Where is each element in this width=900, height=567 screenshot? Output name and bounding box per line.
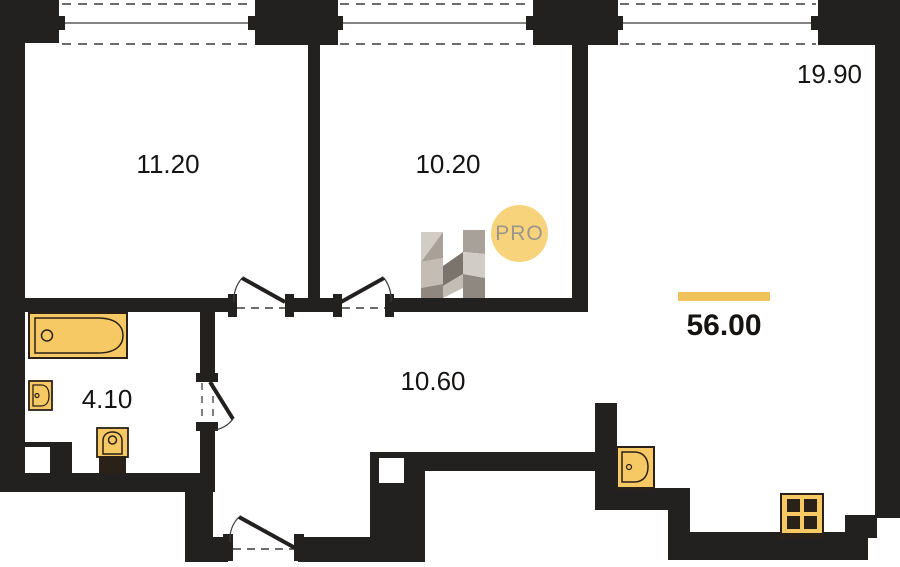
window-3-icon <box>615 4 819 44</box>
bathtub-icon <box>28 312 128 359</box>
door-room1-icon <box>228 278 294 317</box>
window-1-icon <box>57 4 256 44</box>
floor-plan: 11.20 10.20 19.90 4.10 10.60 56.00 PRO <box>0 0 900 567</box>
kitchen-sink-icon <box>616 446 655 489</box>
pro-badge-label: PRO <box>495 222 544 246</box>
room1-area-label: 11.20 <box>98 151 238 177</box>
bathroom-area-label: 4.10 <box>62 386 152 412</box>
door-entrance-icon <box>223 517 304 561</box>
pro-badge: PRO <box>491 205 548 262</box>
bath-sink-icon <box>28 380 53 411</box>
hallway-area-label: 10.60 <box>363 368 503 394</box>
room2-area-label: 10.20 <box>378 151 518 177</box>
total-area-label: 56.00 <box>654 311 794 341</box>
total-area-underline <box>678 292 770 301</box>
stove-icon <box>780 493 824 539</box>
toilet-icon <box>96 427 130 474</box>
door-room2-icon <box>333 278 394 317</box>
living-area-label: 19.90 <box>744 61 862 87</box>
door-bathroom-icon <box>196 373 233 431</box>
window-2-icon <box>335 4 534 44</box>
